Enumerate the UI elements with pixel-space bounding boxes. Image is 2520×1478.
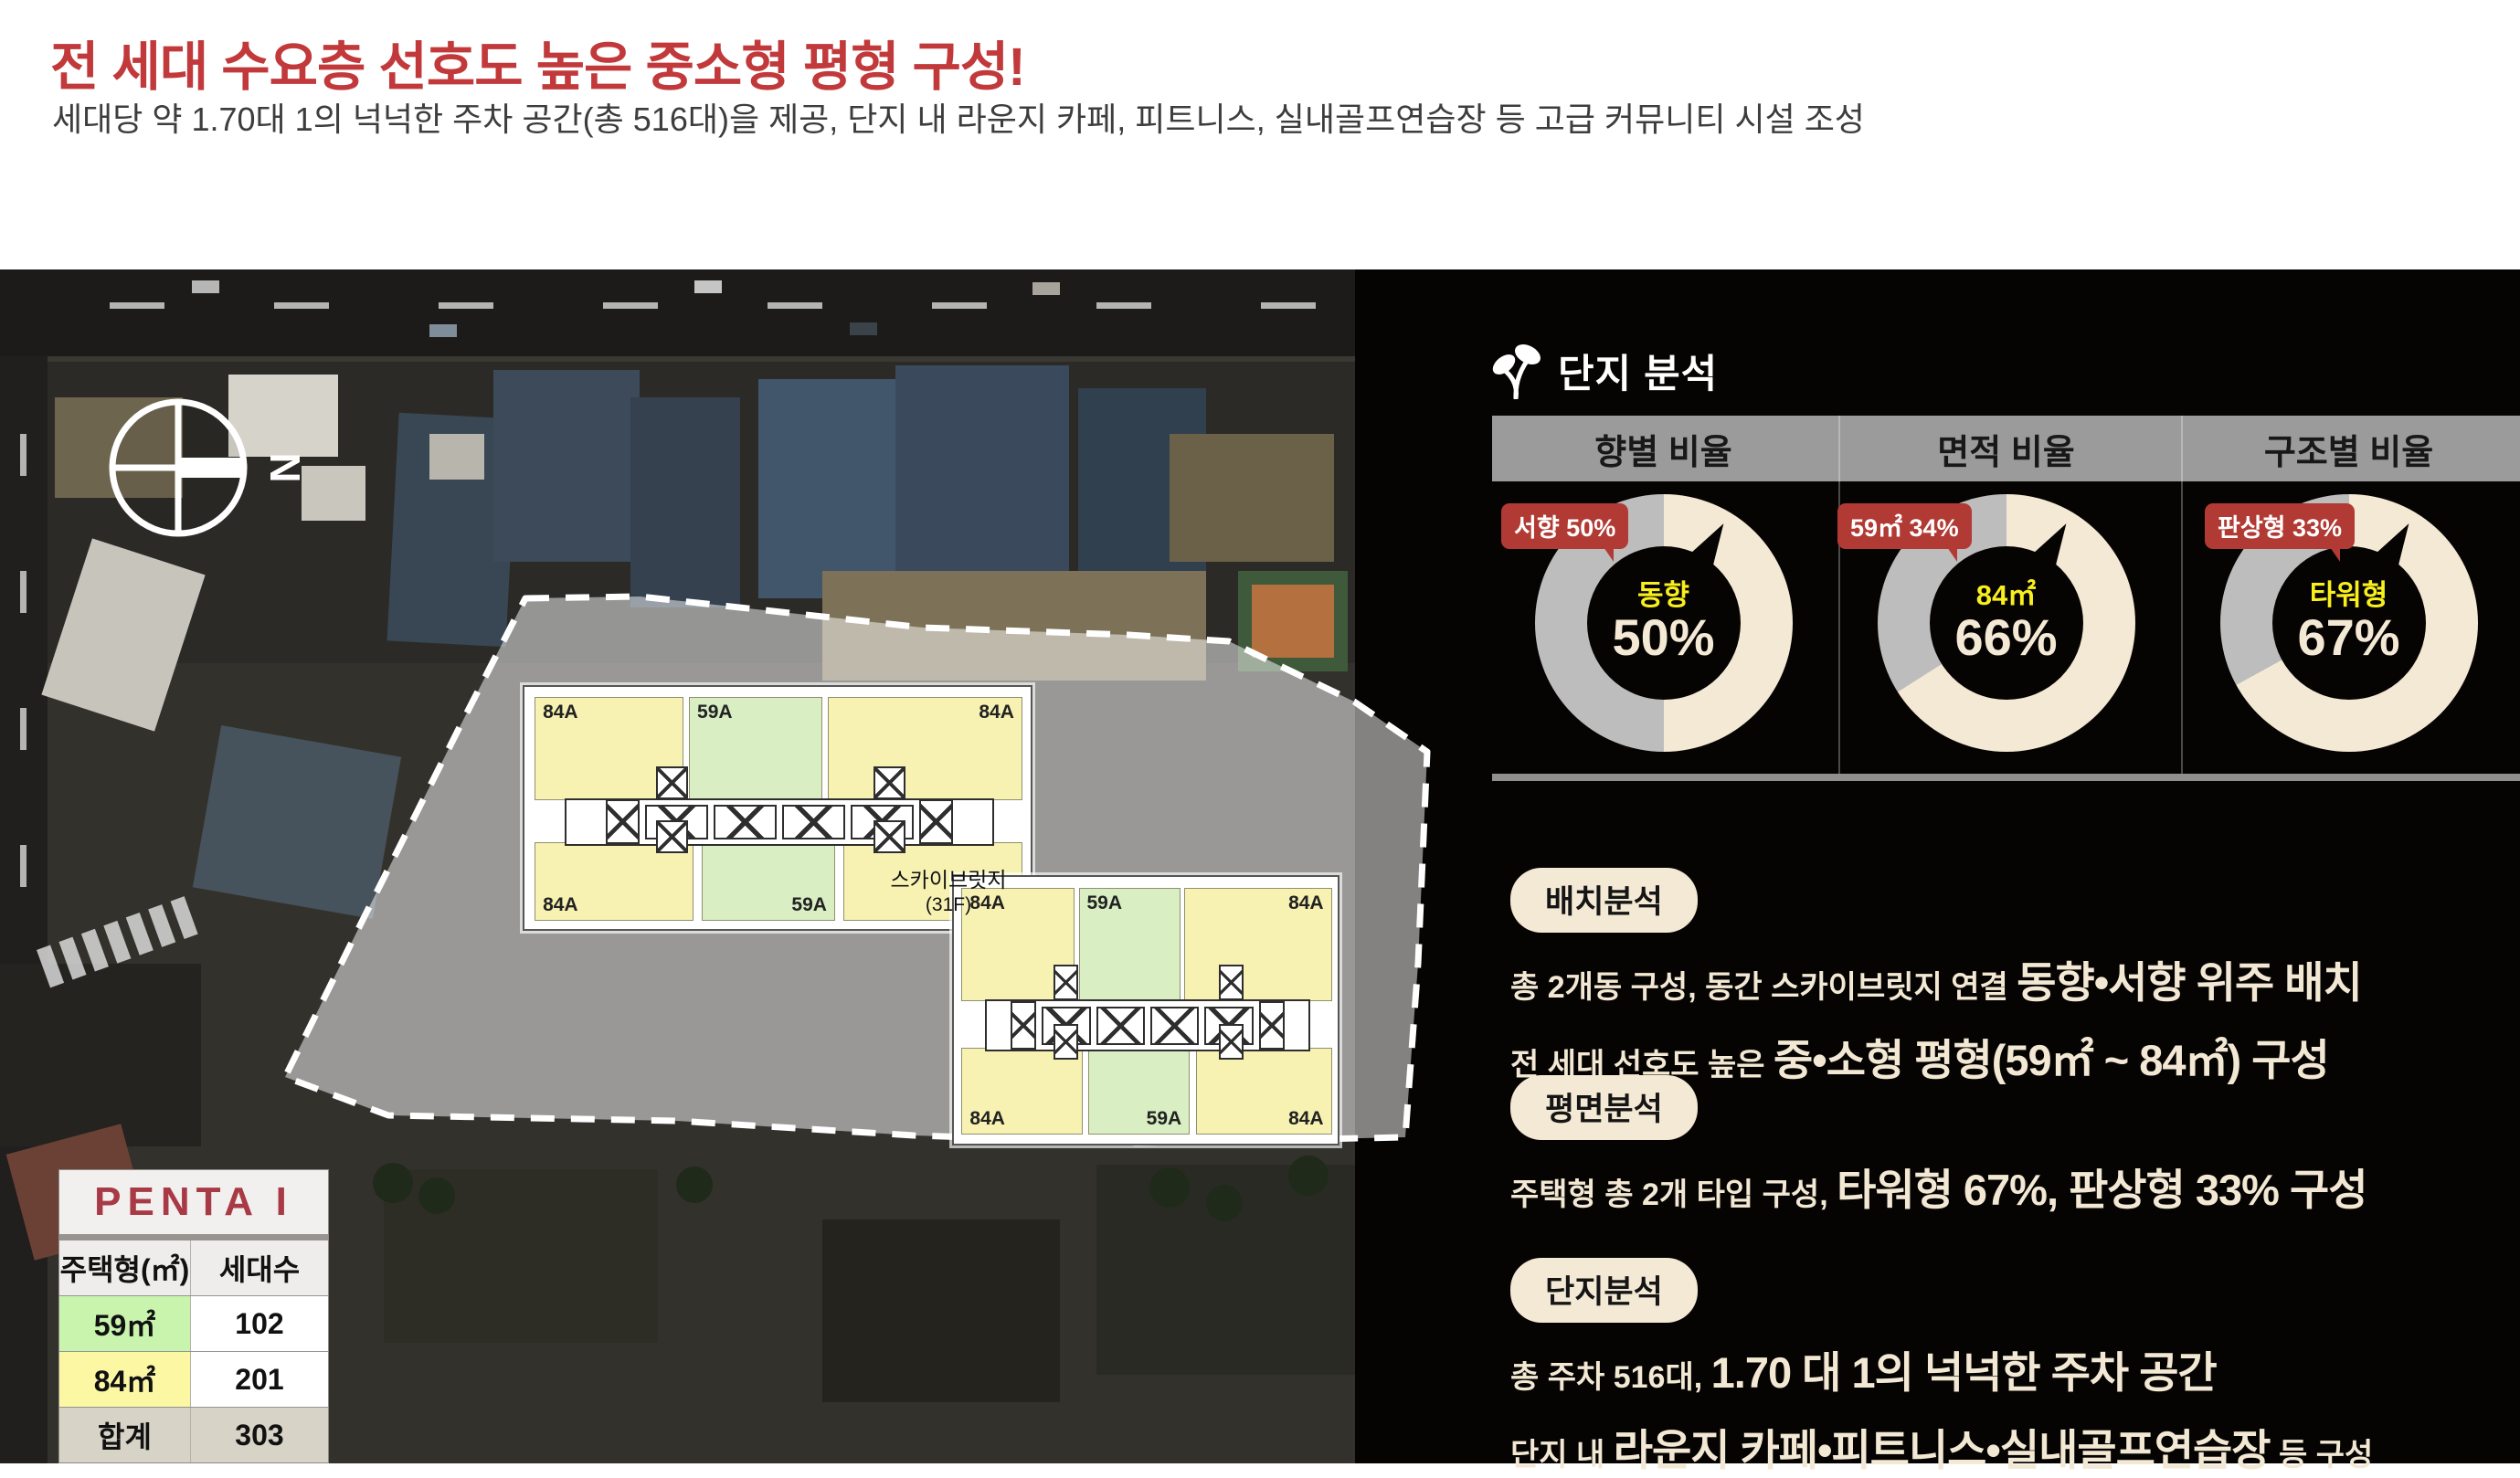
- donut-center-label: 동향: [1637, 581, 1689, 611]
- chart-callout-badge: 서향 50%: [1501, 503, 1628, 549]
- skybridge-text: 스카이브릿지: [875, 868, 1022, 893]
- leaf-icon: [1490, 343, 1543, 399]
- compass-icon: N: [112, 402, 309, 533]
- unit-label: 84A: [1288, 1108, 1324, 1130]
- table-row: 84㎡201: [59, 1352, 328, 1407]
- slide: 전 세대 수요층 선호도 높은 중소형 평형 구성! 세대당 약 1.70대 1…: [0, 0, 2520, 1463]
- emphasis-text: 라운지 카페•피트니스•실내골프연습장: [1614, 1426, 2271, 1474]
- core-shaft: [1011, 1001, 1037, 1050]
- skybridge-label: 스카이브릿지 (31F): [875, 868, 1022, 916]
- stair-shaft: [1054, 1024, 1078, 1060]
- body-text: 등 구성: [2271, 1438, 2374, 1473]
- stair-shaft: [1054, 965, 1078, 1000]
- section-line: 단지 내 라운지 카페•피트니스•실내골프연습장 등 구성: [1510, 1415, 2373, 1478]
- unit-table-header: 주택형(㎡) 세대수: [59, 1240, 328, 1295]
- donut-center-value: 66%: [1954, 611, 2057, 665]
- trees: [373, 1156, 1329, 1221]
- donut-chart: 동향50%서향 50%: [1492, 481, 1835, 774]
- crosswalk: [37, 896, 198, 987]
- section-badge: 배치분석: [1510, 868, 1698, 933]
- table-row: 합계303: [59, 1408, 328, 1462]
- chart-header: 향별 비율: [1492, 416, 1835, 481]
- unit-label: 84A: [979, 702, 1014, 723]
- donut-center-value: 67%: [2297, 611, 2399, 665]
- skybridge-floor: (31F): [875, 893, 1022, 916]
- cell-count: 201: [191, 1352, 328, 1407]
- donut-chart: 타워형67%판상형 33%: [2177, 481, 2520, 774]
- unit-59A: 59A: [1088, 1048, 1190, 1135]
- stair-shaft: [656, 820, 687, 853]
- stair-shaft: [1219, 1024, 1244, 1060]
- column-header-count: 세대수: [191, 1240, 328, 1295]
- unit-84A: 84A: [961, 1048, 1082, 1135]
- cell-type: 84㎡: [59, 1352, 191, 1407]
- core-shaft: [919, 799, 953, 844]
- table-row: 59㎡102: [59, 1296, 328, 1351]
- unit-59A: 59A: [689, 697, 822, 800]
- unit-label: 59A: [1147, 1108, 1182, 1130]
- unit-label: 59A: [1087, 892, 1123, 914]
- cell-count: 102: [191, 1296, 328, 1351]
- core-shaft: [1259, 1001, 1286, 1050]
- unit-84A: 84A: [1196, 1048, 1332, 1135]
- cell-count: 303: [191, 1408, 328, 1462]
- donut-center-label: 타워형: [2310, 581, 2388, 611]
- section-line: 총 2개동 구성, 동간 스카이브릿지 연결 동향•서향 위주 배치: [1510, 947, 2362, 1010]
- section-badge: 평면분석: [1510, 1075, 1698, 1140]
- unit-84A: 84A: [1184, 888, 1332, 1002]
- elevator-core: [985, 999, 1311, 1051]
- stair-shaft: [874, 766, 905, 799]
- donut-center-label: 84㎡: [1976, 581, 2036, 611]
- cell-type: 합계: [59, 1408, 191, 1462]
- cell-type: 59㎡: [59, 1296, 191, 1351]
- unit-84A: 84A: [535, 842, 694, 922]
- section-line: 주택형 총 2개 타입 구성, 타워형 67%, 판상형 33% 구성: [1510, 1155, 2366, 1218]
- body-text: 총 2개동 구성, 동간 스카이브릿지 연결: [1510, 970, 2017, 1005]
- chart-header: 구조별 비율: [2177, 416, 2520, 481]
- unit-label: 84A: [1288, 892, 1324, 914]
- analysis-section: 평면분석주택형 총 2개 타입 구성, 타워형 67%, 판상형 33% 구성: [1510, 1075, 2366, 1218]
- unit-table-title: PENTA I: [59, 1170, 328, 1234]
- unit-59A: 59A: [1079, 888, 1181, 1002]
- unit-table: PENTA I 주택형(㎡) 세대수 59㎡10284㎡201합계303: [58, 1169, 329, 1463]
- donut-center-value: 50%: [1612, 611, 1714, 665]
- stair-shaft: [1219, 965, 1244, 1000]
- emphasis-text: 동향•서향 위주 배치: [2017, 958, 2362, 1007]
- elevator-core: [565, 798, 993, 846]
- unit-59A: 59A: [702, 842, 835, 922]
- donut-charts: 동향50%서향 50%84㎡66%59㎡ 34%타워형67%판상형 33%: [1492, 481, 2520, 774]
- unit-label: 59A: [697, 702, 733, 723]
- stair-shaft: [874, 820, 905, 853]
- core-shaft: [1096, 1007, 1145, 1045]
- core-shaft: [714, 805, 777, 839]
- unit-84A: 84A: [828, 697, 1022, 800]
- chart-header: 면적 비율: [1835, 416, 2177, 481]
- donut-chart: 84㎡66%59㎡ 34%: [1835, 481, 2177, 774]
- unit-label: 84A: [543, 894, 578, 916]
- unit-label: 84A: [969, 1108, 1005, 1130]
- analysis-panel: 단지 분석 향별 비율면적 비율구조별 비율 동향50%서향 50%84㎡66%…: [1355, 269, 2520, 1463]
- body-text: 주택형 총 2개 타입 구성,: [1510, 1177, 1837, 1212]
- emphasis-text: 1.70 대 1의 넉넉한 주차 공간: [1711, 1348, 2217, 1397]
- page-title: 전 세대 수요층 선호도 높은 중소형 평형 구성!: [50, 24, 1025, 100]
- panel-title: 단지 분석: [1558, 343, 1718, 399]
- core-shaft: [1150, 1007, 1199, 1045]
- compass-north-label: N: [261, 452, 309, 482]
- unit-label: 84A: [543, 702, 578, 723]
- stair-shaft: [656, 766, 687, 799]
- analysis-section: 단지분석총 주차 516대, 1.70 대 1의 넉넉한 주차 공간단지 내 라…: [1510, 1258, 2373, 1478]
- column-header-type: 주택형(㎡): [59, 1240, 191, 1295]
- unit-label: 59A: [791, 894, 827, 916]
- emphasis-text: 타워형 67%, 판상형 33% 구성: [1837, 1166, 2366, 1214]
- section-line: 총 주차 516대, 1.70 대 1의 넉넉한 주차 공간: [1510, 1337, 2373, 1400]
- analysis-section: 배치분석총 2개동 구성, 동간 스카이브릿지 연결 동향•서향 위주 배치전 …: [1510, 868, 2362, 1088]
- body-text: 총 주차 516대,: [1510, 1360, 1711, 1395]
- panel-separator: [1492, 774, 2520, 781]
- chart-callout-badge: 59㎡ 34%: [1837, 503, 1972, 549]
- core-shaft: [782, 805, 845, 839]
- body-text: 단지 내: [1510, 1438, 1614, 1473]
- cars: [192, 280, 1060, 337]
- page-subtitle: 세대당 약 1.70대 1의 넉넉한 주차 공간(총 516대)을 제공, 단지…: [52, 93, 1865, 141]
- chart-callout-badge: 판상형 33%: [2205, 503, 2355, 549]
- core-shaft: [606, 799, 640, 844]
- section-badge: 단지분석: [1510, 1258, 1698, 1323]
